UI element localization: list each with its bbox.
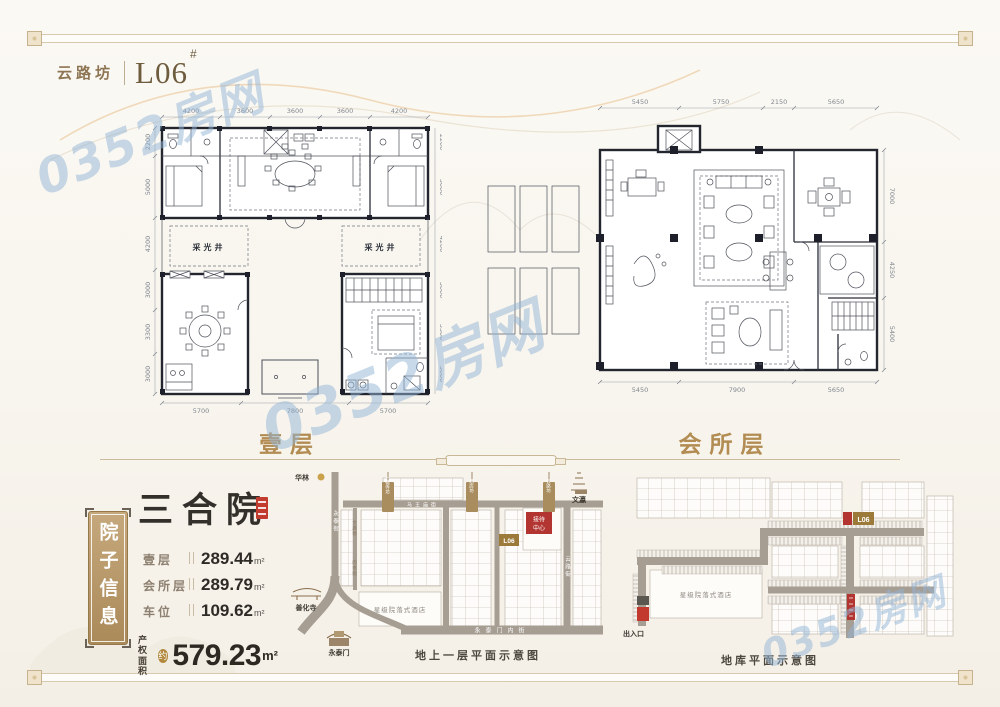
- landmark-label: 华林: [295, 473, 310, 482]
- border-ornament-icon: [958, 670, 973, 685]
- dim-label: 5650: [828, 386, 845, 394]
- seal-stamp-icon: [256, 497, 268, 519]
- area-unit: m²: [254, 608, 265, 618]
- reception-label: 中心: [533, 524, 545, 532]
- dim-label: 5750: [713, 98, 730, 106]
- dim-label: 5000: [438, 179, 442, 196]
- border-ornament-icon: [27, 31, 42, 46]
- unit-code: L06: [135, 55, 188, 90]
- total-area-row: 产权 面积 约 579.23 m²: [138, 635, 278, 676]
- reception-label: 接待: [533, 516, 545, 524]
- approx-badge: 约: [158, 649, 169, 663]
- dim-label: 3600: [287, 107, 304, 115]
- dim-label: 4200: [391, 107, 408, 115]
- area-unit: m²: [254, 582, 265, 592]
- area-label: 壹层: [143, 551, 189, 568]
- unit-tag-label: L06: [857, 517, 869, 524]
- title-divider: [124, 61, 125, 85]
- dim-label: 2200: [144, 134, 152, 151]
- club-floor-plan: 5450 5750 2150 5650 7000 4250 5400 5450 …: [478, 94, 898, 424]
- gate-icon: [327, 631, 351, 646]
- dim-label: 4200: [183, 107, 200, 115]
- temple-icon: [291, 589, 321, 601]
- dim-label: 7900: [729, 386, 746, 394]
- dim-label: 5700: [380, 407, 397, 415]
- svg-text:酒店坊: 酒店坊: [469, 478, 475, 494]
- ramp-marker: [847, 594, 855, 620]
- dim-label: 5450: [632, 98, 649, 106]
- entrance-label: 出入口: [623, 629, 644, 638]
- first-floor-label: 壹层: [225, 425, 355, 459]
- unit-marker: [843, 512, 852, 525]
- landmark-label: 永泰门: [328, 648, 350, 657]
- area-label: 车位: [143, 603, 189, 620]
- hotel-label: 星级院落式酒店: [374, 605, 427, 614]
- landmark-dot-icon: [318, 474, 325, 481]
- landmark-label: 善化寺: [296, 603, 317, 612]
- courtyard-info-panel: 院子信息 三合院 壹层 289.44 m² 会所层 289.79 m² 车位 1…: [88, 497, 278, 662]
- dim-label: 3000: [438, 366, 442, 383]
- garage-site-map: 星级院落式酒店 L06 出入口: [622, 466, 957, 656]
- dim-label: 5000: [144, 179, 152, 196]
- area-value: 289.79: [201, 575, 253, 595]
- total-area-label: 产权 面积: [138, 635, 154, 676]
- total-area-unit: m²: [262, 648, 278, 663]
- plaque-text: 院子信息: [95, 522, 122, 634]
- dim-label: 3600: [237, 107, 254, 115]
- area-unit: m²: [254, 556, 265, 566]
- border-ornament-icon: [958, 31, 973, 46]
- lane-label: 文旅巷: [352, 519, 358, 537]
- dim-label: 3000: [438, 282, 442, 299]
- dim-label: 2200: [438, 134, 442, 151]
- street-label: 云路街: [564, 556, 571, 579]
- total-area-value: 579.23: [172, 641, 261, 671]
- dim-label: 4250: [888, 262, 896, 279]
- first-floor-plan: 4200 3600 3600 3600 4200 2200 5000 4200 …: [142, 104, 442, 424]
- area-row: 壹层 289.44 m²: [143, 549, 265, 566]
- dim-label: 3300: [144, 324, 152, 341]
- unit-suffix: #: [190, 47, 197, 61]
- info-plaque: 院子信息: [88, 511, 128, 645]
- page-title: 云路坊 L06#: [57, 57, 197, 88]
- district-banner: 酒店坊: [466, 472, 478, 512]
- street-label: 永泰门内街: [474, 627, 529, 635]
- dim-label: 3000: [144, 366, 152, 383]
- unit-tag-label: L06: [503, 538, 515, 545]
- district-banner: 云路坊: [543, 472, 555, 512]
- hotel-label: 星级院落式酒店: [680, 590, 733, 599]
- top-border-band: [28, 34, 972, 43]
- entrance-marker: [637, 607, 649, 621]
- room-label-light-well: 采光井: [364, 242, 398, 252]
- area-row: 车位 109.62 m²: [143, 601, 265, 618]
- area-value: 289.44: [201, 549, 253, 569]
- club-floor-label: 会所层: [650, 425, 800, 459]
- room-label-light-well: 采光井: [192, 242, 226, 252]
- street-label: 永泰街: [332, 510, 339, 534]
- area-row: 会所层 289.79 m²: [143, 575, 265, 592]
- dim-label: 4200: [438, 236, 442, 253]
- row-divider: [189, 604, 194, 616]
- svg-text:云路坊: 云路坊: [546, 479, 552, 494]
- dim-label: 5650: [828, 98, 845, 106]
- dim-label: 4200: [144, 236, 152, 253]
- project-name: 云路坊: [57, 62, 114, 83]
- svg-text:七佛寺坊: 七佛寺坊: [385, 475, 391, 496]
- dim-label: 2150: [771, 98, 788, 106]
- dim-label: 5450: [632, 386, 649, 394]
- dim-label: 3300: [438, 324, 442, 341]
- row-divider: [189, 578, 194, 590]
- entrance-booth: [637, 596, 649, 605]
- dim-label: 7800: [287, 407, 304, 415]
- dim-label: 5400: [888, 326, 896, 343]
- dim-label: 3600: [337, 107, 354, 115]
- border-ornament-icon: [27, 670, 42, 685]
- street-label: 马王庙街: [407, 502, 439, 509]
- lane-label: 肉市街: [352, 559, 358, 577]
- dim-label: 3000: [144, 282, 152, 299]
- area-value: 109.62: [201, 601, 253, 621]
- area-label: 会所层: [143, 577, 189, 594]
- layout-title: 三合院: [138, 493, 270, 528]
- dim-label: 5700: [193, 407, 210, 415]
- ground-site-map: 永泰街 云路街 永泰门内街 马王庙街 文旅巷 肉市街 星级院落式酒店 接待 中心…: [283, 464, 613, 664]
- row-divider: [189, 552, 194, 564]
- pagoda-icon: [571, 473, 587, 494]
- dim-label: 7000: [888, 188, 896, 205]
- floorplan-poster: 云路坊 L06# 4200 3600 3600 3600 4200 2200 5…: [0, 0, 1000, 707]
- area-rows: 壹层 289.44 m² 会所层 289.79 m² 车位 109.62 m²: [143, 549, 265, 627]
- landmark-label: 文瀛: [572, 495, 586, 504]
